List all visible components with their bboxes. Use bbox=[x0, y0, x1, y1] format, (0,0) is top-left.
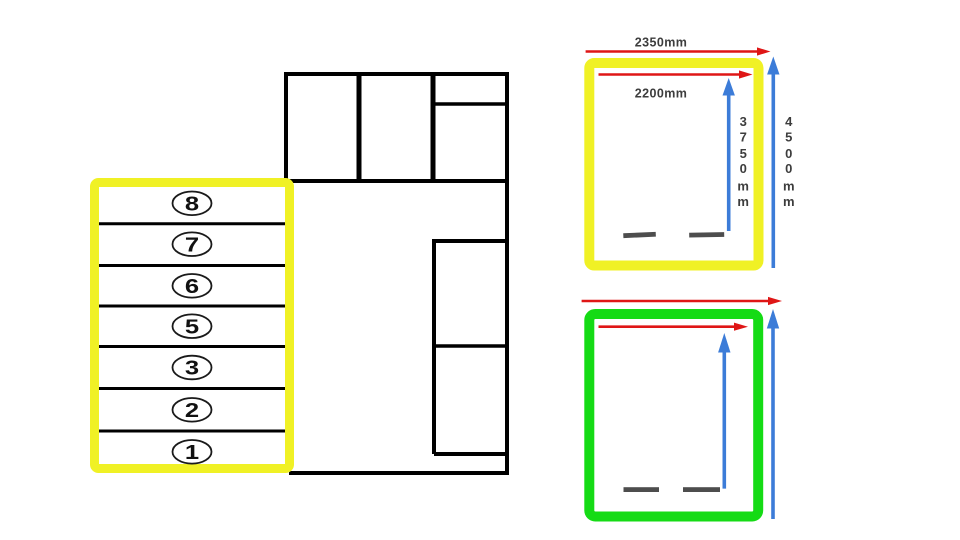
svg-text:3: 3 bbox=[185, 356, 199, 379]
svg-text:8: 8 bbox=[185, 192, 199, 215]
svg-text:1: 1 bbox=[185, 441, 199, 464]
svg-text:5: 5 bbox=[185, 315, 199, 338]
svg-text:2200mm: 2200mm bbox=[635, 87, 687, 101]
svg-text:2350mm: 2350mm bbox=[635, 36, 687, 50]
svg-text:4500mm: 4500mm bbox=[783, 114, 795, 209]
svg-text:3750mm: 3750mm bbox=[737, 114, 749, 209]
svg-text:2: 2 bbox=[185, 399, 199, 422]
svg-text:6: 6 bbox=[185, 275, 199, 298]
svg-text:7: 7 bbox=[185, 233, 199, 256]
